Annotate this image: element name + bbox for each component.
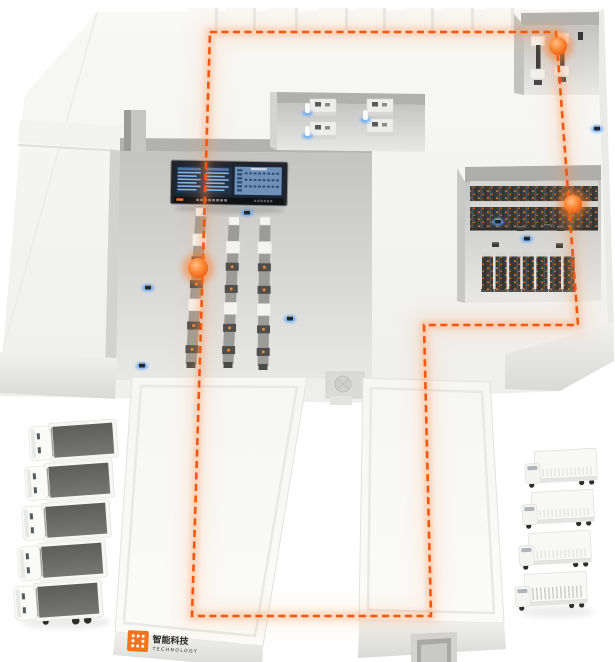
roller-indicator <box>263 266 266 269</box>
floor-device-top <box>517 226 524 228</box>
rack-unit-cap <box>496 252 507 257</box>
operator-figure <box>305 103 310 113</box>
board-tick <box>270 200 272 202</box>
board-grid-cell <box>267 173 270 175</box>
truck-cab-window <box>33 473 36 479</box>
board-label-mark <box>237 189 242 191</box>
truck-corrugation <box>573 586 574 598</box>
board-grid-cell <box>245 185 248 187</box>
marker-dot <box>549 37 567 55</box>
conveyor-tote <box>223 302 237 314</box>
sensor-box-top <box>139 363 145 364</box>
workstation-monitor <box>315 125 321 130</box>
roller-indicator <box>262 350 265 353</box>
floor-device-top <box>492 242 499 244</box>
board-grid-cell <box>258 179 261 181</box>
conveyor-head <box>260 217 270 225</box>
truck-box <box>514 571 588 611</box>
truck-open-bed <box>21 499 111 543</box>
truck-box <box>524 448 598 488</box>
rack-unit-body <box>482 256 493 290</box>
rack-unit-body <box>550 256 561 290</box>
truck-corrugation <box>561 587 562 599</box>
truck-corrugation <box>537 588 538 600</box>
board-grid-cell <box>249 172 252 174</box>
board-grid-cell <box>258 186 261 188</box>
marker-dot <box>564 195 582 213</box>
operator-figure <box>305 126 310 136</box>
board-tick <box>254 200 256 202</box>
board-grid-cell <box>245 172 248 174</box>
rack-unit-cap <box>523 252 534 257</box>
workstation-front <box>310 112 336 116</box>
dock-door <box>411 632 457 662</box>
truck-open-bed <box>28 419 118 463</box>
roller-indicator <box>228 326 231 329</box>
board-right-header <box>251 168 267 170</box>
roller-indicator <box>230 287 233 290</box>
board-grid-cell <box>263 186 266 188</box>
board-grid-cell <box>249 185 252 187</box>
workstation-item <box>325 103 330 107</box>
workstation-front <box>367 112 393 116</box>
board-grid-cell <box>276 186 279 188</box>
workstation-front <box>310 135 336 139</box>
sensor-box-top <box>244 210 250 211</box>
machine-foot <box>534 80 542 85</box>
sensor-box-top <box>145 285 151 286</box>
truck-cab-window <box>23 607 26 613</box>
truck-corrugation <box>541 588 542 600</box>
roller-indicator <box>227 349 230 352</box>
rack-recess-leftwall <box>457 168 465 303</box>
truck-windshield <box>521 548 531 553</box>
board-label-mark <box>237 185 242 187</box>
rack-unit-cap <box>509 252 520 257</box>
corridor-endwall <box>270 92 277 150</box>
iot-sensor <box>591 125 603 132</box>
conveyor-foot <box>224 362 233 368</box>
trucks-right-shadow <box>519 606 595 618</box>
marker-dot <box>188 258 208 278</box>
connector-step <box>330 396 352 405</box>
truck-cab-window <box>30 513 33 519</box>
board-tick <box>224 199 227 201</box>
truck-fleet-right <box>514 448 598 611</box>
board-grid-cell <box>272 186 275 188</box>
board-tick <box>264 200 266 202</box>
corridor-floor <box>277 103 425 152</box>
board-orange-tick <box>176 198 183 201</box>
workstation <box>367 119 393 136</box>
workstation-top <box>310 122 336 135</box>
truck-corrugation <box>557 587 558 599</box>
sensor-box-top <box>495 219 501 220</box>
truck-cab-window <box>26 553 29 559</box>
board-grid-cell <box>272 173 275 175</box>
truck-open-bed <box>24 459 114 503</box>
conveyor-tote <box>257 304 271 316</box>
roller-indicator <box>262 328 265 331</box>
board-tick <box>257 200 259 202</box>
iot-sensor <box>284 315 296 322</box>
board-tick <box>220 199 223 201</box>
conveyor-head <box>229 217 239 225</box>
truck-windshield <box>517 589 527 594</box>
truck-bed-cargo <box>45 503 107 538</box>
workstation-monitor <box>315 102 321 107</box>
board-grid-cell <box>254 179 257 181</box>
truck-cab-window <box>31 527 34 533</box>
truck-corrugation <box>565 586 566 598</box>
machine-bottom-box <box>530 69 545 79</box>
workstation-item <box>382 123 387 127</box>
conveyor-foot <box>259 364 268 370</box>
truck-corrugation <box>533 588 534 600</box>
sensor-box-top <box>524 236 530 237</box>
truck-bed-cargo <box>37 583 99 618</box>
board-label-mark <box>237 177 242 179</box>
roller-indicator <box>231 265 234 268</box>
route-marker <box>182 252 214 284</box>
machine-aux-unit <box>578 32 583 40</box>
board-grid-cell <box>249 179 252 181</box>
warehouse-illustration: 智能科技 TECHNOLOGY <box>0 0 615 662</box>
truck-bed-cargo <box>41 543 103 578</box>
board-grid-cell <box>267 186 270 188</box>
workstation-monitor <box>372 122 378 127</box>
iot-sensor <box>241 209 253 216</box>
iot-sensor <box>521 235 533 242</box>
board-label-mark <box>237 173 242 175</box>
roller-indicator <box>263 288 266 291</box>
front-face-left <box>0 352 117 399</box>
board-label-mark <box>237 169 242 171</box>
operator-figure <box>363 110 368 120</box>
workstation <box>310 99 336 116</box>
truck-open-bed <box>17 539 107 583</box>
workstation-front <box>367 132 393 136</box>
rack-unit-body <box>523 256 534 290</box>
truck-corrugation <box>545 587 546 599</box>
truck-cab-window <box>34 487 37 493</box>
rack-recess-backwall <box>465 165 601 182</box>
workstation-item <box>382 103 387 107</box>
board-grid-cell <box>263 179 266 181</box>
board-grid-cell <box>272 179 275 181</box>
rack-unit-body <box>536 256 547 290</box>
iot-sensor <box>136 362 148 369</box>
truck-fleet-left <box>13 419 118 629</box>
truck-corrugation <box>577 586 578 598</box>
rack-unit-cap <box>482 252 493 257</box>
board-grid-cell <box>276 179 279 181</box>
iot-sensor <box>492 218 504 225</box>
truck-box <box>521 489 595 529</box>
truck-corrugation <box>549 587 550 599</box>
rack-unit-cap <box>536 252 547 257</box>
truck-cab-window <box>22 593 25 599</box>
board-label-mark <box>237 181 242 183</box>
board-grid-cell <box>254 172 257 174</box>
truck-cab-window <box>27 567 30 573</box>
sensor-box-top <box>594 126 600 127</box>
workstation-top <box>367 99 393 112</box>
board-grid-cell <box>263 173 266 175</box>
truck-bed-cargo <box>48 463 110 498</box>
board-grid-cell <box>258 173 261 175</box>
truck-corrugation <box>553 587 554 599</box>
board-tick <box>267 200 269 202</box>
truck-cab-window <box>38 447 41 453</box>
route-marker <box>543 31 573 61</box>
truck-corrugation <box>581 586 582 598</box>
truck-bed-cargo <box>52 423 114 458</box>
scene-svg: 智能科技 TECHNOLOGY <box>0 0 615 662</box>
truck-windshield <box>524 507 534 512</box>
rack-unit-cap <box>550 252 561 257</box>
truck-cab-window <box>37 433 40 439</box>
board-tick <box>261 200 263 202</box>
truck-windshield <box>527 466 537 471</box>
board-grid-cell <box>276 173 279 175</box>
logo-square <box>127 630 149 652</box>
workstation-monitor <box>372 102 378 107</box>
workstation <box>310 122 336 139</box>
rack-unit-body <box>509 256 520 290</box>
workstation-top <box>367 119 393 132</box>
floor-device-top <box>544 224 551 226</box>
conveyor-tote <box>258 242 272 254</box>
route-marker <box>558 189 588 219</box>
iot-sensor <box>142 284 154 291</box>
workstation-top <box>310 99 336 112</box>
board-grid-cell <box>245 179 248 181</box>
truck-box <box>518 530 592 570</box>
sensor-box-top <box>287 316 293 317</box>
rack-unit-body <box>496 256 507 290</box>
corridor-backwall <box>277 92 425 105</box>
doorway-notch-sidewall <box>124 110 131 151</box>
board-grid-cell <box>267 179 270 181</box>
workstation-item <box>325 126 330 130</box>
board-grid-cell <box>254 185 257 187</box>
truck-corrugation <box>569 586 570 598</box>
workstation <box>367 99 393 116</box>
conveyor-tote <box>226 241 240 253</box>
